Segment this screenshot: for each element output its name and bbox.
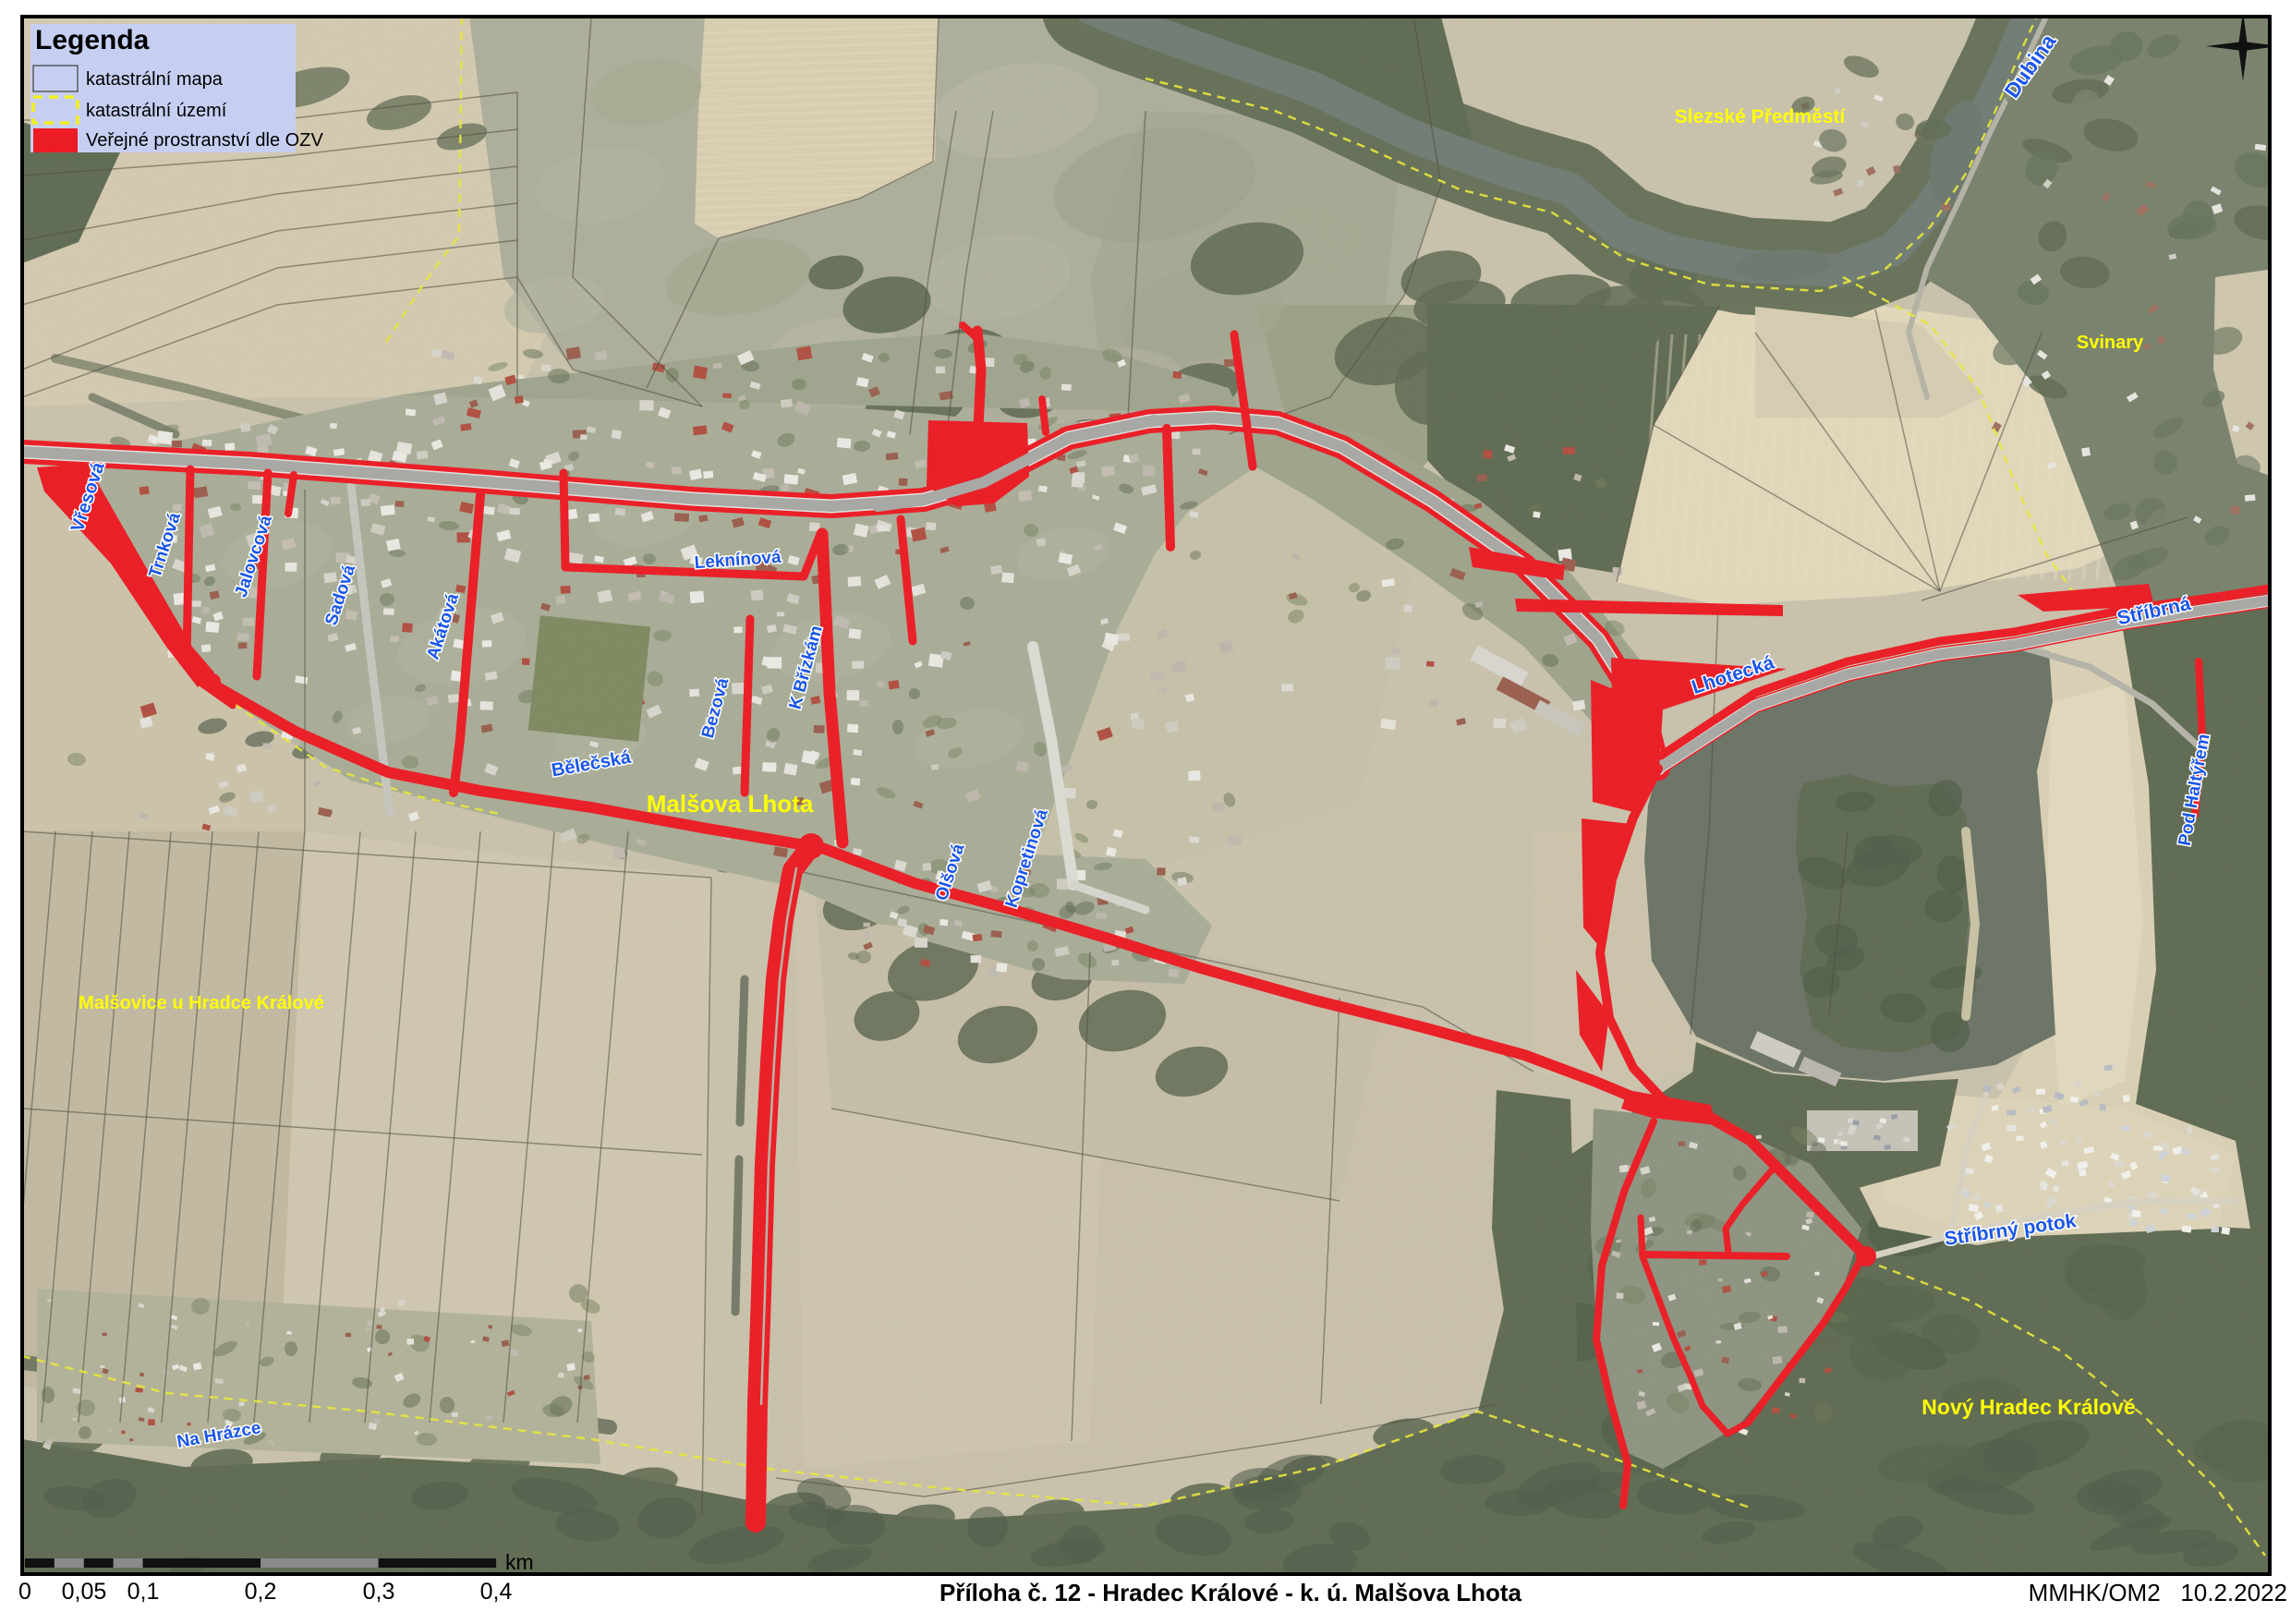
svg-text:0,4: 0,4 bbox=[480, 1579, 513, 1605]
svg-text:Malšovice u Hradce Králové: Malšovice u Hradce Králové bbox=[79, 993, 324, 1013]
svg-text:0,05: 0,05 bbox=[62, 1579, 107, 1605]
svg-text:Veřejné prostranství dle OZV: Veřejné prostranství dle OZV bbox=[86, 130, 323, 151]
svg-text:Legenda: Legenda bbox=[35, 25, 150, 55]
svg-text:0,1: 0,1 bbox=[127, 1579, 160, 1605]
svg-text:katastrální území: katastrální území bbox=[86, 101, 227, 121]
svg-text:Svinary: Svinary bbox=[2077, 333, 2144, 353]
svg-text:0: 0 bbox=[18, 1579, 31, 1605]
svg-text:MMHK/OM2 10.2.2022: MMHK/OM2 10.2.2022 bbox=[2029, 1579, 2287, 1606]
svg-text:Malšova Lhota: Malšova Lhota bbox=[647, 790, 814, 818]
svg-text:km: km bbox=[505, 1550, 534, 1574]
svg-text:katastrální mapa: katastrální mapa bbox=[86, 69, 224, 90]
svg-text:0,2: 0,2 bbox=[245, 1579, 277, 1605]
svg-text:0,3: 0,3 bbox=[363, 1579, 395, 1605]
svg-text:Nový Hradec Králové: Nový Hradec Králové bbox=[1921, 1395, 2135, 1419]
svg-text:Příloha č. 12 - Hradec Králové: Příloha č. 12 - Hradec Králové - k. ú. M… bbox=[939, 1579, 1522, 1606]
svg-text:Slezské Předměstí: Slezské Předměstí bbox=[1675, 106, 1847, 127]
